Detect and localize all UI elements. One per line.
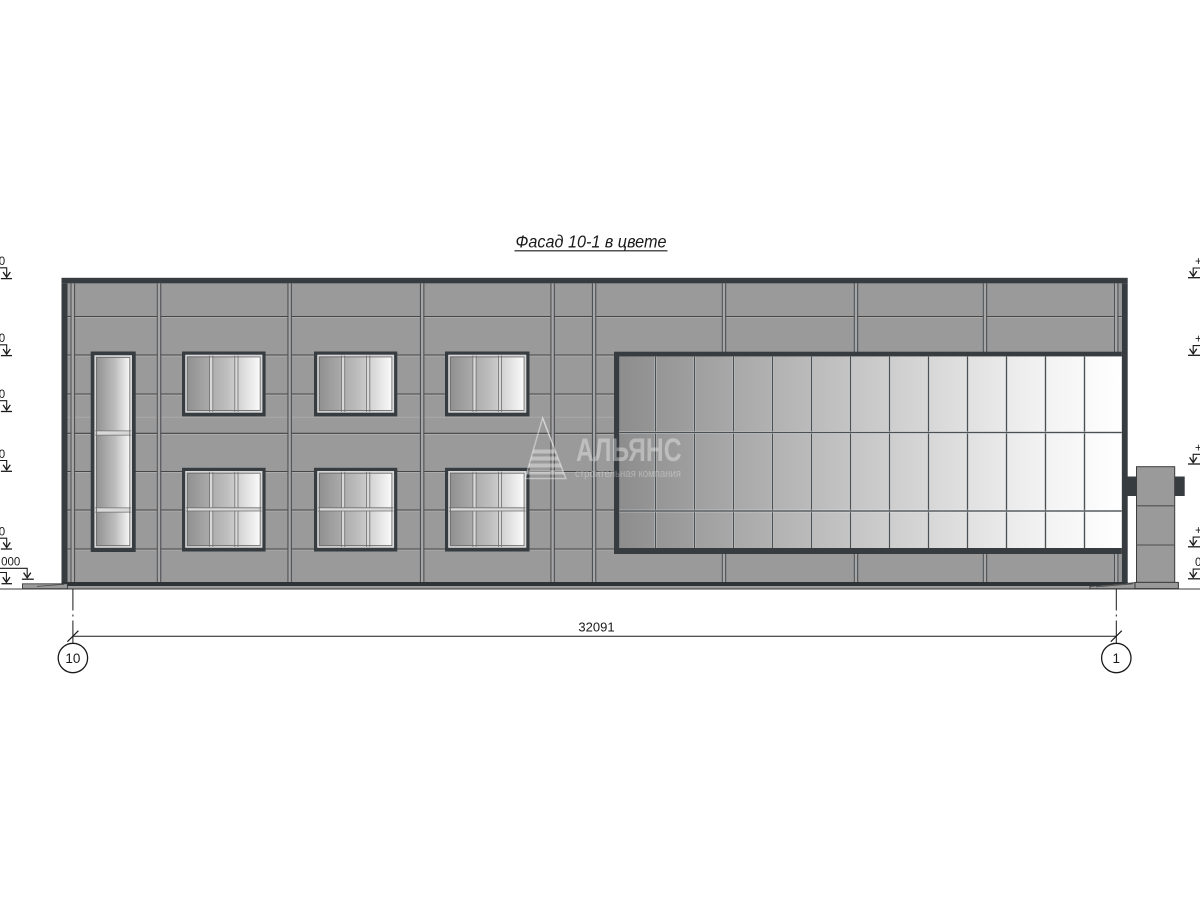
svg-text:32091: 32091 bbox=[578, 620, 614, 635]
svg-text:0: 0 bbox=[0, 449, 5, 461]
svg-text:1.000: 1.000 bbox=[0, 557, 20, 569]
svg-text:АЛЬЯНС: АЛЬЯНС bbox=[576, 432, 682, 468]
svg-text:0: 0 bbox=[1195, 557, 1200, 569]
svg-text:Фасад 10-1 в цвете: Фасад 10-1 в цвете bbox=[516, 232, 667, 252]
svg-text:+: + bbox=[1195, 525, 1200, 537]
svg-text:0: 0 bbox=[0, 256, 5, 268]
svg-text:1: 1 bbox=[1113, 651, 1121, 666]
svg-text:0: 0 bbox=[0, 333, 5, 345]
svg-text:10: 10 bbox=[65, 651, 80, 666]
svg-text:+: + bbox=[1195, 256, 1200, 268]
svg-text:0: 0 bbox=[0, 527, 5, 539]
svg-text:+: + bbox=[1195, 442, 1200, 454]
svg-text:+: + bbox=[1195, 334, 1200, 346]
svg-text:0: 0 bbox=[0, 389, 5, 401]
svg-text:строительная компания: строительная компания bbox=[575, 468, 681, 480]
